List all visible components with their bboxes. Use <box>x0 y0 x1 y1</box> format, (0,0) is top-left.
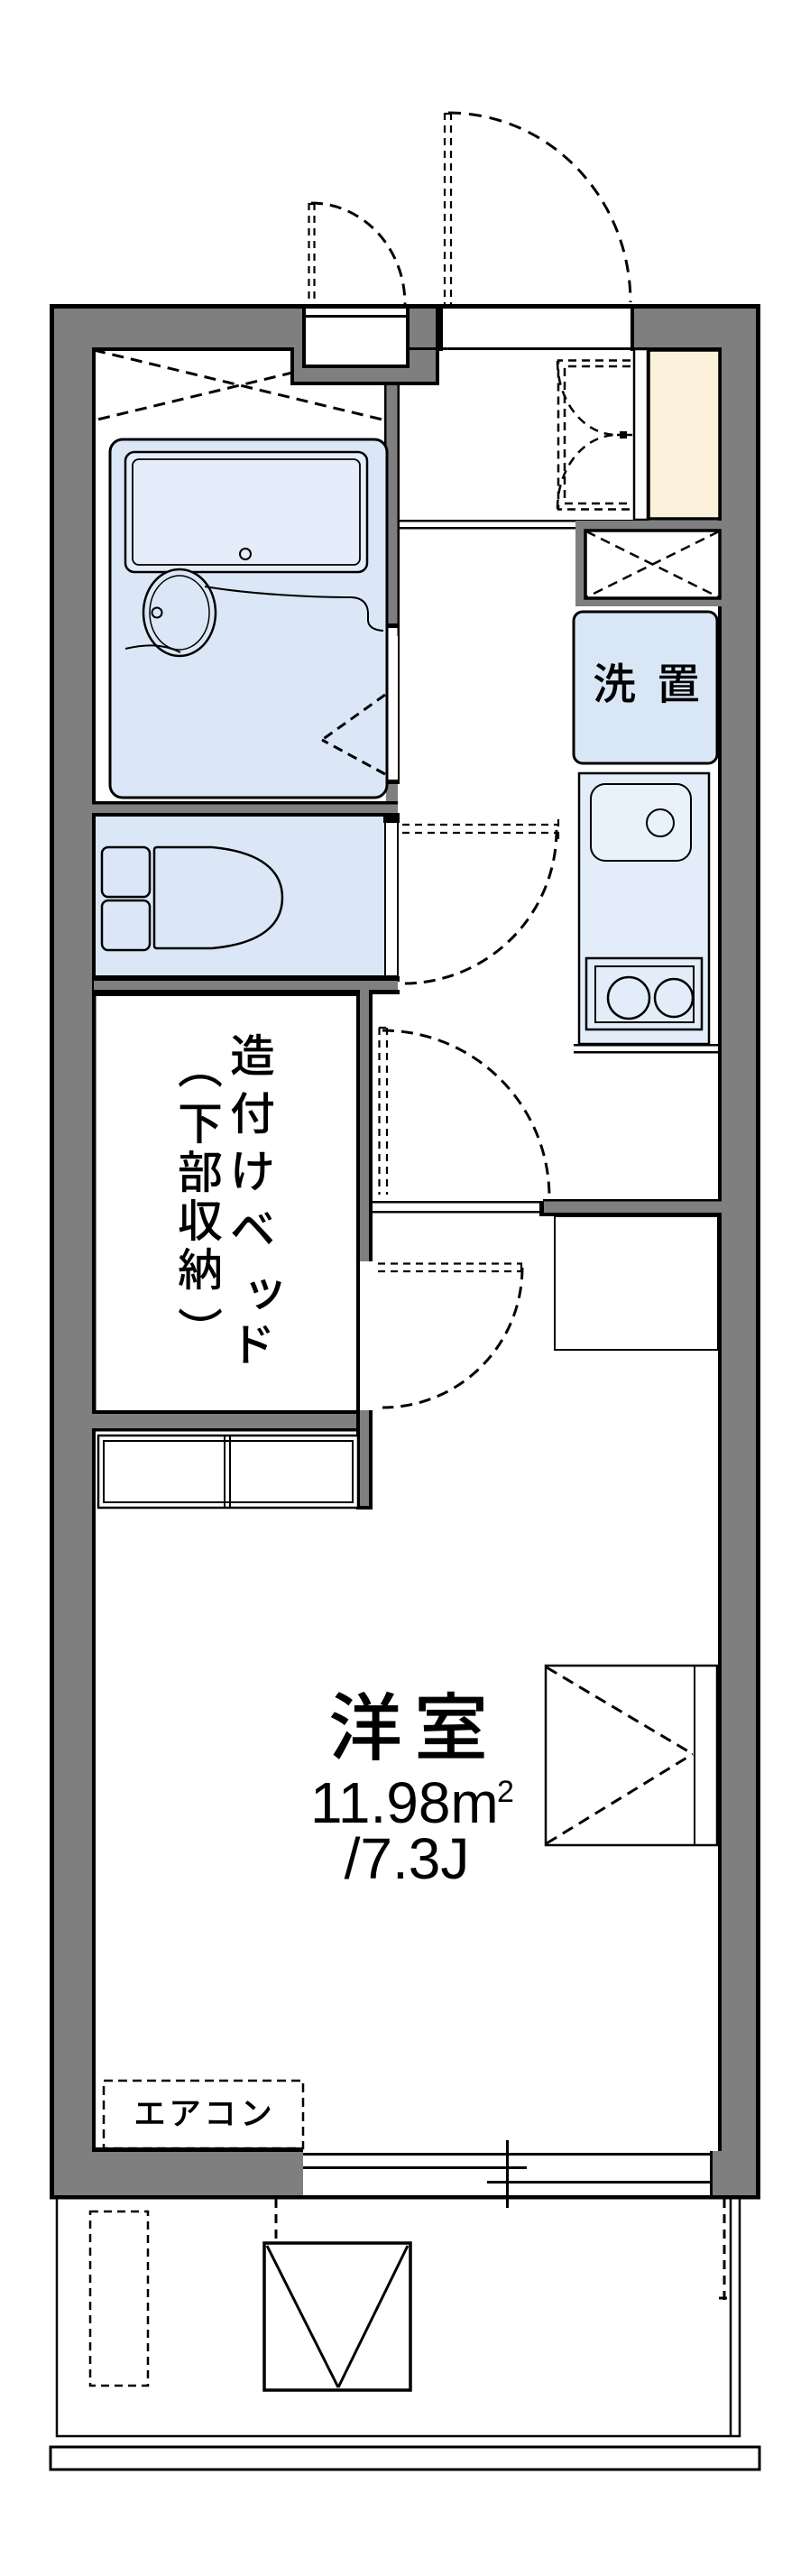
svg-text:/7.3J: /7.3J <box>345 1826 470 1891</box>
svg-text:2: 2 <box>497 1775 514 1809</box>
